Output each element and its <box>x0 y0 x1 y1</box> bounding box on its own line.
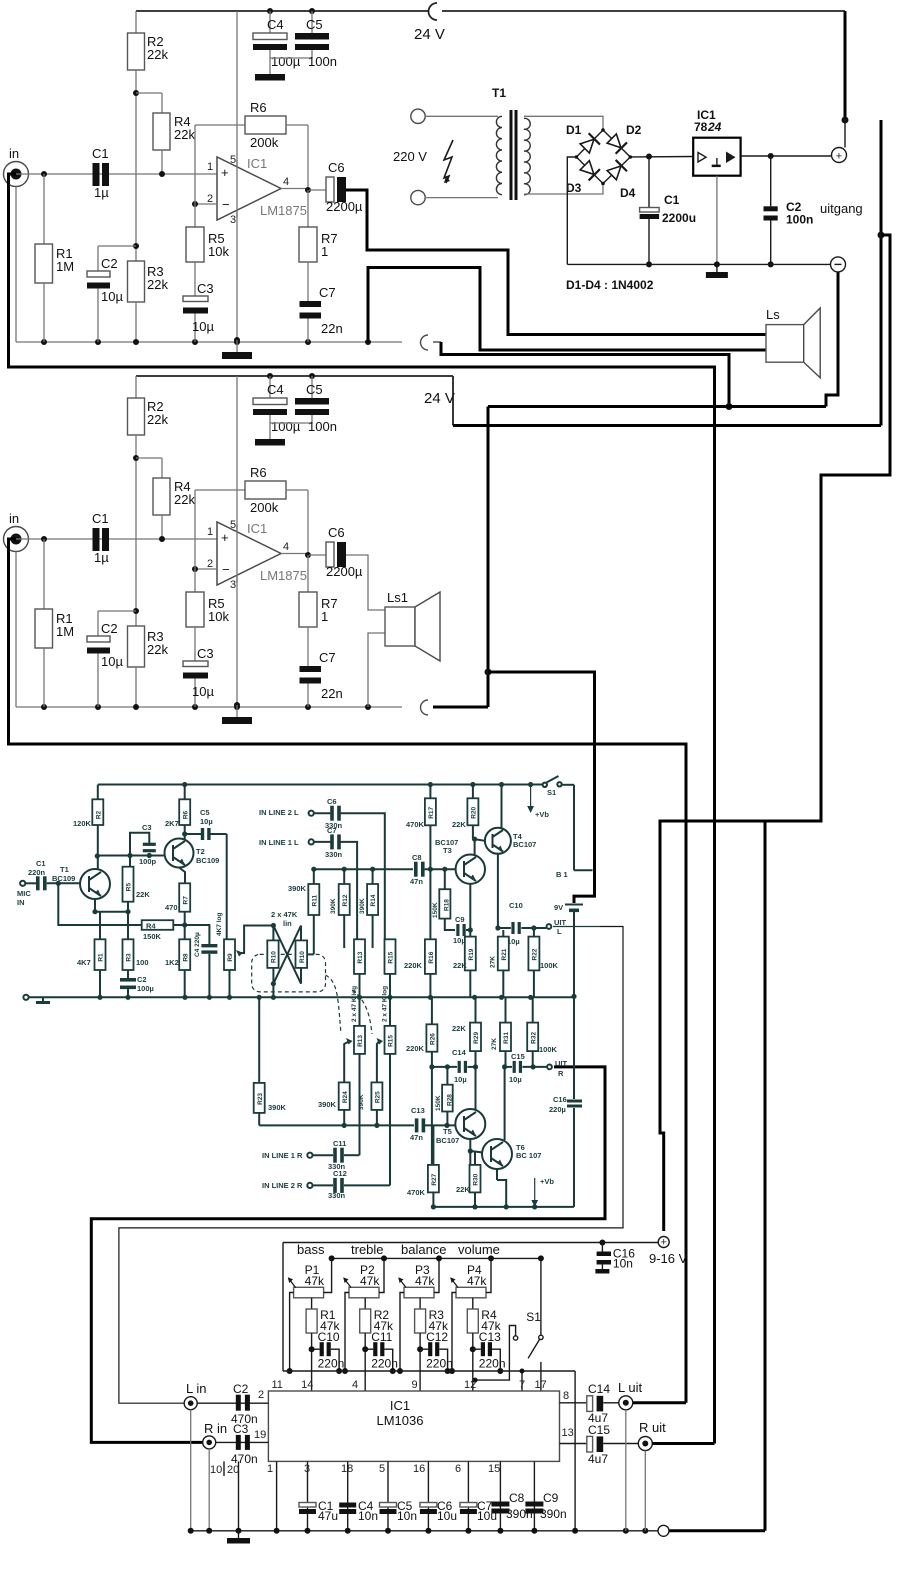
svg-text:1µ: 1µ <box>94 185 109 200</box>
svg-text:R8: R8 <box>182 953 189 962</box>
svg-text:470K: 470K <box>406 820 425 829</box>
svg-text:7: 7 <box>519 1379 525 1391</box>
svg-text:9V: 9V <box>554 903 563 912</box>
svg-text:22K: 22K <box>456 1185 470 1194</box>
svg-text:lin: lin <box>283 919 292 928</box>
svg-text:9-16 V: 9-16 V <box>649 1251 688 1266</box>
svg-text:R15: R15 <box>388 1035 395 1047</box>
svg-text:1: 1 <box>207 526 213 538</box>
svg-text:100µ: 100µ <box>137 984 154 993</box>
svg-text:390K: 390K <box>330 898 337 914</box>
svg-text:1: 1 <box>321 609 328 624</box>
svg-text:R18: R18 <box>444 899 451 911</box>
svg-text:bass: bass <box>297 1242 325 1257</box>
svg-text:IC1: IC1 <box>247 521 267 536</box>
svg-text:47u: 47u <box>318 1509 338 1523</box>
svg-text:10u: 10u <box>437 1509 457 1523</box>
svg-text:C7: C7 <box>327 826 337 835</box>
svg-text:S1: S1 <box>526 1310 541 1324</box>
svg-text:BC 107: BC 107 <box>516 1151 541 1160</box>
svg-text:10k: 10k <box>208 244 229 259</box>
svg-text:BC107: BC107 <box>513 840 536 849</box>
svg-text:5: 5 <box>230 519 236 531</box>
svg-text:100µ: 100µ <box>271 54 301 69</box>
svg-text:13: 13 <box>562 1427 574 1439</box>
svg-text:C6: C6 <box>328 525 345 540</box>
svg-text:1: 1 <box>207 161 213 173</box>
svg-text:+: + <box>836 151 842 163</box>
svg-text:200k: 200k <box>250 135 279 150</box>
svg-text:IN LINE 1 R: IN LINE 1 R <box>262 1151 303 1160</box>
svg-text:24 V: 24 V <box>424 390 455 407</box>
svg-text:220 V: 220 V <box>393 149 427 164</box>
svg-text:1K2: 1K2 <box>165 958 179 967</box>
svg-text:balance: balance <box>401 1242 447 1257</box>
svg-text:C8: C8 <box>412 853 422 862</box>
svg-text:R5: R5 <box>126 883 133 892</box>
svg-text:C5: C5 <box>306 17 323 32</box>
svg-text:22k: 22k <box>174 492 195 507</box>
svg-text:C5: C5 <box>200 808 210 817</box>
svg-text:Ls: Ls <box>766 307 780 322</box>
svg-text:78: 78 <box>694 120 708 134</box>
svg-text:BC109: BC109 <box>196 856 219 865</box>
svg-text:R32: R32 <box>530 1032 537 1044</box>
svg-text:R10: R10 <box>271 951 278 963</box>
svg-text:LM1875: LM1875 <box>260 203 307 218</box>
svg-text:10µ: 10µ <box>200 817 213 826</box>
svg-text:C11: C11 <box>333 1139 346 1148</box>
svg-text:C4 220µ: C4 220µ <box>194 932 201 957</box>
svg-text:47k: 47k <box>467 1274 487 1288</box>
svg-text:C2: C2 <box>137 975 147 984</box>
svg-text:3: 3 <box>230 214 236 226</box>
svg-text:220K: 220K <box>406 1044 425 1053</box>
svg-text:1: 1 <box>321 244 328 259</box>
svg-text:C16: C16 <box>553 1095 567 1104</box>
svg-text:+Vb: +Vb <box>540 1177 554 1186</box>
svg-text:R16: R16 <box>428 951 435 963</box>
svg-text:6: 6 <box>455 1463 461 1475</box>
svg-text:9: 9 <box>412 1379 418 1391</box>
svg-text:R3: R3 <box>126 953 133 962</box>
svg-text:2200µ: 2200µ <box>326 564 363 579</box>
svg-text:100µ: 100µ <box>271 419 301 434</box>
svg-text:47n: 47n <box>410 1133 423 1142</box>
svg-text:B 1: B 1 <box>556 870 568 879</box>
svg-text:+: + <box>221 165 229 180</box>
svg-text:10µ: 10µ <box>509 1075 522 1084</box>
svg-text:1M: 1M <box>56 259 74 274</box>
svg-text:100K: 100K <box>539 1045 558 1054</box>
svg-text:24 V: 24 V <box>414 26 445 43</box>
svg-text:in: in <box>9 511 19 526</box>
svg-text:D3: D3 <box>566 181 582 195</box>
svg-text:27K: 27K <box>490 956 497 968</box>
svg-text:220n: 220n <box>318 1357 345 1371</box>
svg-text:Ls1: Ls1 <box>387 590 408 605</box>
svg-text:10µ: 10µ <box>454 1075 467 1084</box>
svg-text:390K: 390K <box>318 1100 337 1109</box>
svg-text:22k: 22k <box>147 642 168 657</box>
svg-text:BC107: BC107 <box>436 1136 459 1145</box>
svg-text:C6: C6 <box>327 797 337 806</box>
svg-text:220n: 220n <box>426 1357 453 1371</box>
svg-text:2 x 47 K log: 2 x 47 K log <box>382 986 389 1022</box>
svg-text:C10: C10 <box>318 1330 340 1344</box>
svg-text:2: 2 <box>207 558 213 570</box>
svg-text:14: 14 <box>301 1379 313 1391</box>
svg-text:390K: 390K <box>359 898 366 914</box>
svg-text:47n: 47n <box>410 877 423 886</box>
svg-text:R20: R20 <box>471 806 478 818</box>
svg-text:S1: S1 <box>547 788 556 797</box>
svg-text:100n: 100n <box>308 54 337 69</box>
svg-text:C9: C9 <box>455 915 465 924</box>
svg-text:T1: T1 <box>60 865 69 874</box>
svg-text:10µ: 10µ <box>453 936 466 945</box>
svg-text:R30: R30 <box>473 1173 480 1185</box>
svg-text:R26: R26 <box>430 1033 437 1045</box>
svg-text:R17: R17 <box>428 806 435 818</box>
svg-text:R7: R7 <box>182 896 189 905</box>
svg-text:C14: C14 <box>588 1382 610 1396</box>
svg-text:L uit: L uit <box>618 1380 642 1395</box>
svg-text:22k: 22k <box>174 127 195 142</box>
svg-text:C11: C11 <box>371 1330 392 1344</box>
svg-text:R13: R13 <box>357 1035 364 1047</box>
svg-text:IN LINE 2 L: IN LINE 2 L <box>259 808 299 817</box>
svg-text:22k: 22k <box>147 47 168 62</box>
svg-text:UIT: UIT <box>554 918 567 927</box>
svg-text:20: 20 <box>227 1464 239 1476</box>
svg-text:L: L <box>557 927 562 936</box>
svg-text:T2: T2 <box>196 847 205 856</box>
svg-text:uitgang: uitgang <box>820 201 863 216</box>
svg-text:10µ: 10µ <box>101 289 123 304</box>
svg-text:4K7: 4K7 <box>77 958 91 967</box>
svg-text:R12: R12 <box>342 894 349 906</box>
svg-text:1: 1 <box>267 1463 273 1475</box>
svg-text:220n: 220n <box>371 1357 398 1371</box>
svg-text:R4: R4 <box>146 922 156 931</box>
svg-text:+: + <box>221 530 229 545</box>
svg-text:T3: T3 <box>443 846 452 855</box>
svg-text:220n: 220n <box>28 868 46 877</box>
svg-text:18: 18 <box>341 1463 353 1475</box>
svg-text:4: 4 <box>352 1379 358 1391</box>
svg-text:C5: C5 <box>306 382 323 397</box>
svg-text:R6: R6 <box>250 100 267 115</box>
svg-text:LM1875: LM1875 <box>260 568 307 583</box>
svg-text:C15: C15 <box>588 1423 610 1437</box>
svg-text:22k: 22k <box>147 277 168 292</box>
svg-text:C3: C3 <box>197 281 214 296</box>
svg-text:4K7 log: 4K7 log <box>216 912 223 936</box>
svg-text:11: 11 <box>272 1379 283 1391</box>
svg-text:R13: R13 <box>357 951 364 963</box>
svg-text:D1-D4 : 1N4002: D1-D4 : 1N4002 <box>566 278 654 292</box>
svg-text:C15: C15 <box>511 1052 525 1061</box>
svg-text:L in: L in <box>186 1381 206 1396</box>
svg-text:4u7: 4u7 <box>588 1452 608 1466</box>
svg-text:10k: 10k <box>208 609 229 624</box>
svg-text:C1: C1 <box>92 511 109 526</box>
svg-text:27K: 27K <box>491 1038 498 1050</box>
svg-text:200k: 200k <box>250 500 279 515</box>
svg-text:R6: R6 <box>182 810 189 819</box>
svg-text:C13: C13 <box>411 1106 425 1115</box>
svg-text:100n: 100n <box>308 419 337 434</box>
svg-text:2200u: 2200u <box>662 211 696 225</box>
svg-text:10n: 10n <box>613 1257 633 1271</box>
svg-text:LM1036: LM1036 <box>377 1413 424 1428</box>
svg-text:10µ: 10µ <box>101 654 123 669</box>
svg-text:4: 4 <box>283 176 289 188</box>
svg-text:C2: C2 <box>101 256 118 271</box>
svg-text:C12: C12 <box>426 1330 448 1344</box>
svg-text:C3: C3 <box>197 646 214 661</box>
svg-text:100n: 100n <box>786 213 813 227</box>
svg-text:10: 10 <box>210 1464 222 1476</box>
svg-text:+Vb: +Vb <box>535 810 549 819</box>
svg-text:C4: C4 <box>267 17 284 32</box>
svg-text:C14: C14 <box>452 1048 467 1057</box>
svg-text:17: 17 <box>535 1379 547 1391</box>
svg-text:T5: T5 <box>443 1127 452 1136</box>
svg-text:22K: 22K <box>452 1024 466 1033</box>
svg-text:R27: R27 <box>431 1173 438 1185</box>
svg-text:3: 3 <box>304 1463 310 1475</box>
svg-text:22k: 22k <box>147 412 168 427</box>
svg-text:R14: R14 <box>370 894 377 906</box>
svg-text:C12: C12 <box>333 1169 347 1178</box>
svg-text:2 x 47 K log: 2 x 47 K log <box>351 986 358 1022</box>
svg-text:R25: R25 <box>375 1091 382 1103</box>
svg-text:2 x 47K: 2 x 47K <box>271 910 298 919</box>
svg-text:IN LINE 1 L: IN LINE 1 L <box>259 838 299 847</box>
svg-text:2200µ: 2200µ <box>326 199 363 214</box>
svg-text:IC1: IC1 <box>390 1398 410 1413</box>
svg-text:22K: 22K <box>452 820 466 829</box>
svg-text:volume: volume <box>458 1242 500 1257</box>
svg-text:T1: T1 <box>492 86 506 100</box>
svg-text:R in: R in <box>204 1421 227 1436</box>
svg-text:390n: 390n <box>506 1507 533 1521</box>
svg-text:390K: 390K <box>358 1094 365 1110</box>
svg-text:+: + <box>660 1237 666 1249</box>
svg-text:C7: C7 <box>319 650 336 665</box>
svg-text:in: in <box>9 146 19 161</box>
svg-text:10n: 10n <box>358 1509 378 1523</box>
svg-text:220n: 220n <box>479 1357 506 1371</box>
svg-text:R24: R24 <box>342 1091 349 1103</box>
svg-text:100: 100 <box>136 958 149 967</box>
svg-text:15: 15 <box>488 1463 500 1475</box>
svg-text:47k: 47k <box>305 1274 325 1288</box>
svg-text:8: 8 <box>563 1390 569 1402</box>
svg-text:C2: C2 <box>233 1382 249 1396</box>
svg-text:22K: 22K <box>136 890 150 899</box>
svg-text:treble: treble <box>351 1242 384 1257</box>
svg-text:IC1: IC1 <box>247 156 267 171</box>
svg-text:5: 5 <box>379 1463 385 1475</box>
svg-text:R11: R11 <box>311 895 318 907</box>
svg-text:C3: C3 <box>233 1422 249 1436</box>
svg-text:−: − <box>222 562 230 577</box>
svg-text:2: 2 <box>207 193 213 205</box>
svg-text:R uit: R uit <box>639 1420 666 1435</box>
svg-text:R29: R29 <box>473 1032 480 1044</box>
svg-text:22K: 22K <box>453 961 467 970</box>
svg-text:R2: R2 <box>95 810 102 819</box>
svg-text:C7: C7 <box>319 285 336 300</box>
svg-text:D1: D1 <box>566 123 582 137</box>
svg-text:1µ: 1µ <box>94 550 109 565</box>
svg-text:22n: 22n <box>321 321 343 336</box>
svg-text:10µ: 10µ <box>192 684 214 699</box>
svg-text:C9: C9 <box>543 1491 559 1505</box>
svg-text:150K: 150K <box>143 932 162 941</box>
svg-text:R15: R15 <box>388 951 395 963</box>
svg-text:R28: R28 <box>447 1094 454 1106</box>
svg-text:100K: 100K <box>540 961 559 970</box>
svg-text:390n: 390n <box>540 1507 567 1521</box>
svg-text:47k: 47k <box>415 1274 435 1288</box>
svg-text:4: 4 <box>283 541 289 553</box>
svg-text:D4: D4 <box>620 186 636 200</box>
svg-text:470: 470 <box>165 903 178 912</box>
svg-text:MIC: MIC <box>17 889 31 898</box>
svg-text:R22: R22 <box>532 948 539 960</box>
svg-text:C10: C10 <box>509 901 523 910</box>
svg-text:R19: R19 <box>468 948 475 960</box>
svg-text:16: 16 <box>413 1463 425 1475</box>
svg-text:1M: 1M <box>56 624 74 639</box>
svg-text:R9: R9 <box>227 953 234 962</box>
svg-text:150K: 150K <box>435 1095 442 1111</box>
svg-text:330n: 330n <box>325 850 343 859</box>
svg-text:24: 24 <box>707 120 722 134</box>
svg-text:R21: R21 <box>501 948 508 960</box>
svg-text:C8: C8 <box>509 1491 525 1505</box>
svg-text:R31: R31 <box>503 1032 510 1044</box>
svg-text:−: − <box>222 197 230 212</box>
svg-text:UIT: UIT <box>555 1059 568 1068</box>
svg-text:R6: R6 <box>250 465 267 480</box>
svg-text:C6: C6 <box>328 160 345 175</box>
svg-text:R10: R10 <box>299 951 306 963</box>
svg-text:390K: 390K <box>288 884 307 893</box>
svg-text:D2: D2 <box>626 123 642 137</box>
svg-text:IN: IN <box>17 898 25 907</box>
svg-text:10n: 10n <box>397 1509 417 1523</box>
svg-text:2: 2 <box>258 1389 264 1401</box>
svg-text:22n: 22n <box>321 686 343 701</box>
svg-text:390K: 390K <box>268 1103 287 1112</box>
svg-text:C4: C4 <box>267 382 284 397</box>
svg-text:220K: 220K <box>404 961 423 970</box>
svg-text:470K: 470K <box>407 1188 426 1197</box>
svg-text:100p: 100p <box>139 857 157 866</box>
svg-text:3: 3 <box>230 579 236 591</box>
svg-text:C13: C13 <box>479 1330 501 1344</box>
svg-text:330n: 330n <box>328 1191 346 1200</box>
svg-text:C1: C1 <box>36 859 46 868</box>
svg-text:R1: R1 <box>98 953 105 962</box>
svg-text:19: 19 <box>254 1429 266 1441</box>
svg-text:12: 12 <box>464 1379 476 1391</box>
svg-text:220µ: 220µ <box>549 1105 566 1114</box>
svg-text:C1: C1 <box>92 146 109 161</box>
svg-text:2K7: 2K7 <box>165 819 179 828</box>
svg-text:R23: R23 <box>257 1093 264 1105</box>
svg-text:C1: C1 <box>664 193 680 207</box>
svg-text:10u: 10u <box>477 1509 497 1523</box>
svg-text:C3: C3 <box>142 823 152 832</box>
svg-text:IN LINE 2 R: IN LINE 2 R <box>262 1181 303 1190</box>
svg-text:R: R <box>558 1069 564 1078</box>
svg-text:10µ: 10µ <box>192 319 214 334</box>
svg-text:C2: C2 <box>101 621 118 636</box>
svg-text:150K: 150K <box>432 902 439 918</box>
svg-text:120K: 120K <box>73 819 92 828</box>
svg-text:BC109: BC109 <box>52 874 75 883</box>
svg-text:5: 5 <box>230 154 236 166</box>
svg-text:47k: 47k <box>360 1274 380 1288</box>
